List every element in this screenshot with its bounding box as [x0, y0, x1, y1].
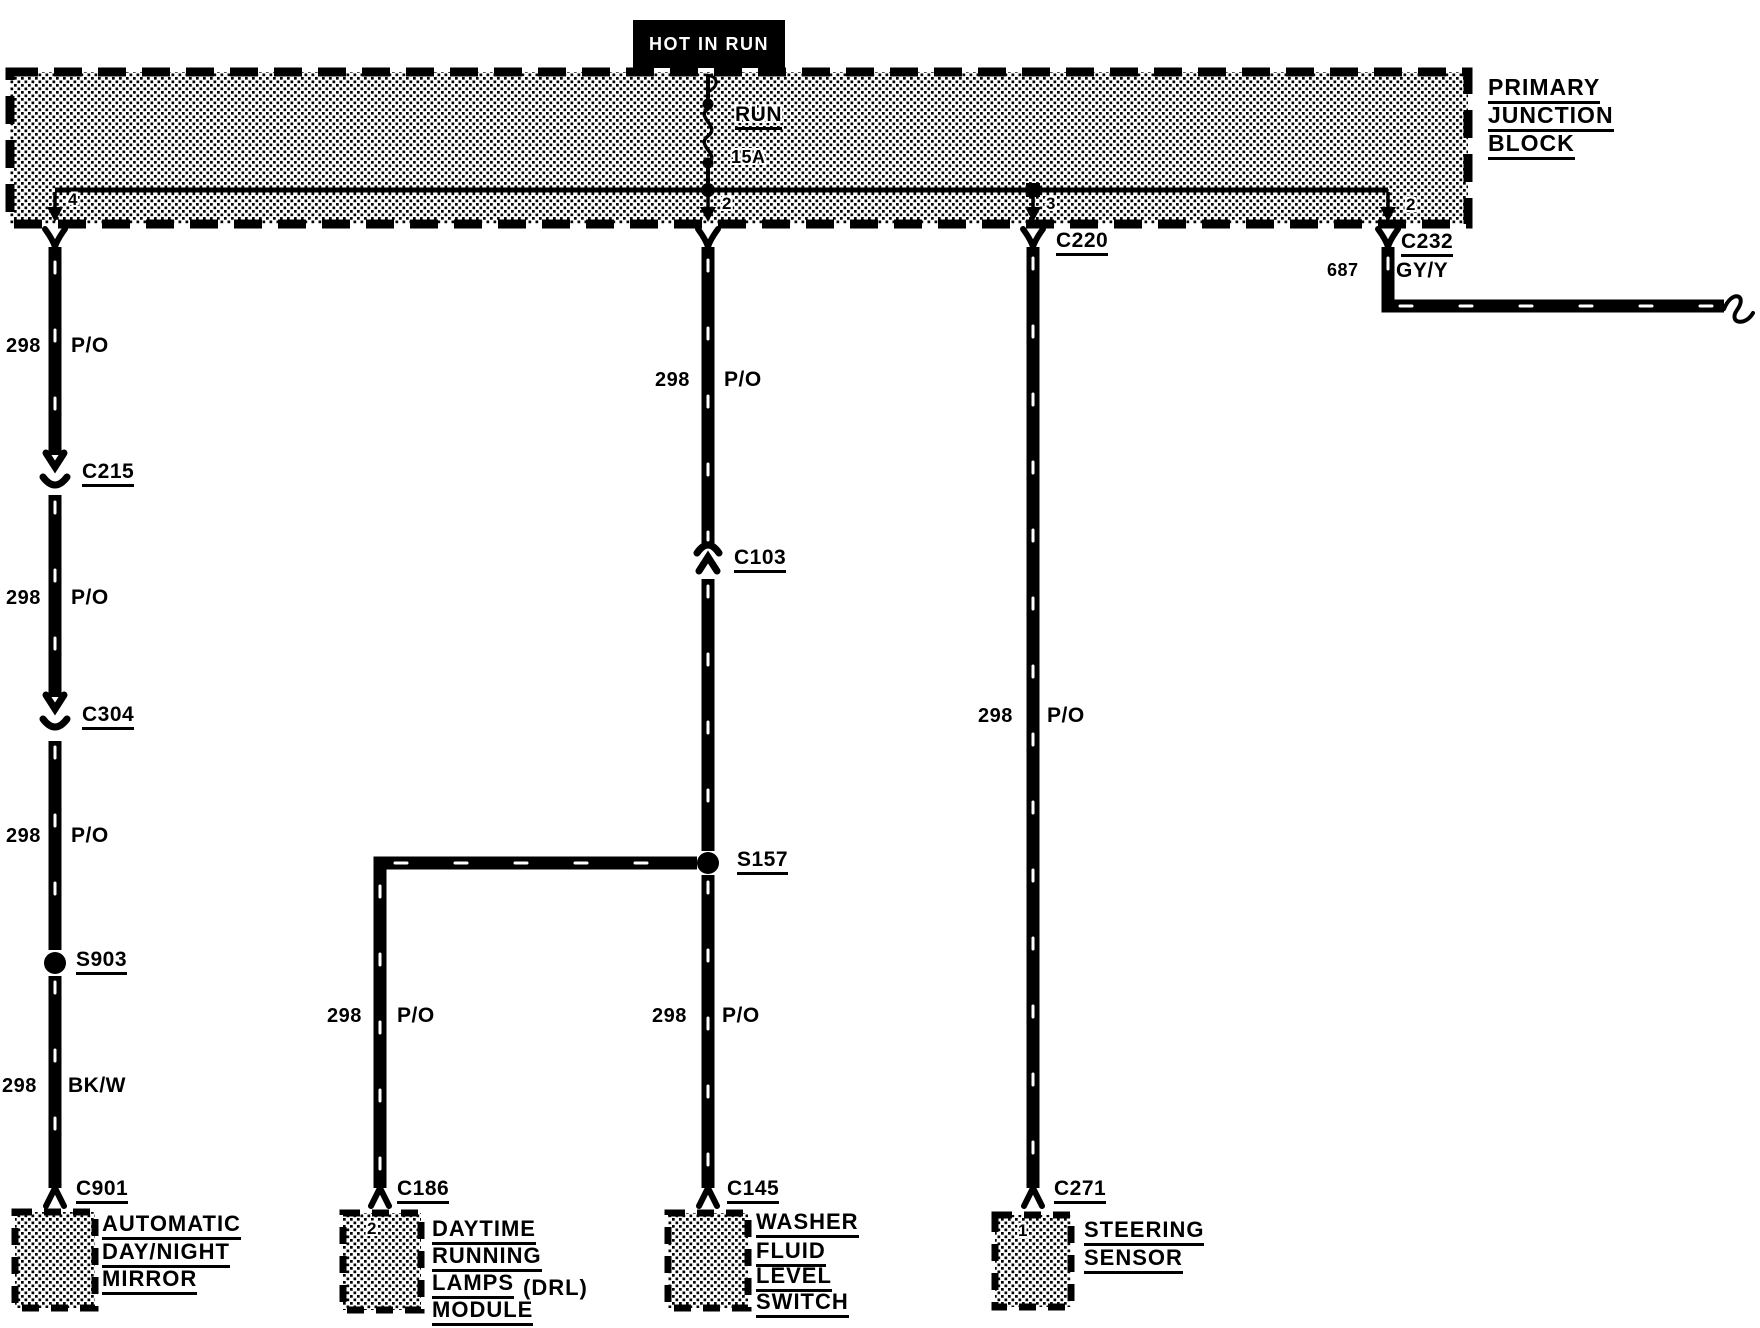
wire-color-label: P/O: [71, 825, 109, 846]
component-pin-number: 1: [1018, 1222, 1028, 1239]
wire-circuit-label: 298: [978, 706, 1013, 726]
wire-circuit-label: 298: [6, 588, 41, 608]
component-name-line: DAY/NIGHT: [102, 1241, 230, 1268]
diagram-canvas: [0, 0, 1760, 1328]
junction-block-title-line2: JUNCTION: [1488, 104, 1614, 132]
pin-number-2-center: 2: [722, 195, 732, 212]
component-name-word: (DRL): [523, 1277, 588, 1299]
wire-circuit-label: 298: [652, 1006, 687, 1026]
fuse-rating-label: 15A: [731, 148, 766, 166]
component-name-line: LAMPS (DRL): [432, 1272, 588, 1299]
wire-dash-marks: [55, 258, 1716, 1183]
pin-number-4: 4: [68, 191, 78, 208]
offpage-continuation-icon: [1724, 296, 1753, 322]
drl-module-box: [343, 1213, 421, 1310]
wire-color-label: BK/W: [68, 1075, 126, 1096]
component-name-line: AUTOMATIC: [102, 1213, 241, 1240]
wire-color-label: P/O: [71, 587, 109, 608]
bus-junction-tap: [1026, 183, 1040, 197]
mirror-component-box: [15, 1212, 95, 1308]
hot-in-run-banner: HOT IN RUN: [633, 20, 785, 68]
wire-circuit-label: 298: [6, 826, 41, 846]
connector-c215-symbol: [43, 453, 67, 485]
connector-label-c145: C145: [727, 1178, 779, 1204]
connector-label-c215: C215: [82, 461, 134, 487]
connector-c304-symbol: [43, 695, 67, 727]
connector-label-c304: C304: [82, 704, 134, 730]
steering-sensor-box: [995, 1215, 1071, 1307]
component-name-word: LAMPS: [432, 1272, 514, 1299]
splice-s157-dot: [697, 852, 719, 874]
bus-junction-dot: [701, 183, 715, 197]
component-name-line: LEVEL: [756, 1265, 832, 1292]
splice-label-s157: S157: [737, 849, 788, 875]
junction-block-title-line3: BLOCK: [1488, 132, 1575, 160]
washer-switch-box: [668, 1213, 748, 1308]
splice-label-s903: S903: [76, 949, 127, 975]
splice-s903-dot: [44, 952, 66, 974]
component-name-line: RUNNING: [432, 1245, 542, 1272]
component-name-line: STEERING: [1084, 1219, 1204, 1246]
wire-circuit-label: 298: [327, 1006, 362, 1026]
component-name-line: SENSOR: [1084, 1247, 1183, 1274]
wire-circuit-label: 298: [6, 336, 41, 356]
wires: [55, 247, 1724, 1188]
connector-c103-symbol: [697, 545, 719, 571]
wiring-diagram-page: HOT IN RUN PRIMARY JUNCTION BLOCK RUN 15…: [0, 0, 1760, 1328]
junction-block-title-line1: PRIMARY: [1488, 76, 1600, 104]
component-end-forks: [46, 1188, 1042, 1206]
connector-label-c901: C901: [76, 1178, 128, 1204]
component-name-line: SWITCH: [756, 1291, 849, 1318]
block-exit-forks: [45, 229, 1398, 247]
connector-label-c186: C186: [397, 1178, 449, 1204]
connector-label-c103: C103: [734, 547, 786, 573]
wire-color-label: P/O: [722, 1005, 760, 1026]
wire-circuit-label: 298: [655, 370, 690, 390]
component-name-line: WASHER: [756, 1211, 859, 1238]
connector-label-c220: C220: [1056, 230, 1108, 256]
wire-color-label: GY/Y: [1396, 260, 1448, 281]
wire-color-label: P/O: [397, 1005, 435, 1026]
wire-color-label: P/O: [71, 335, 109, 356]
component-name-line: MODULE: [432, 1299, 533, 1326]
component-pin-number: 2: [367, 1220, 377, 1237]
component-name-line: DAYTIME: [432, 1218, 536, 1245]
pin-number-3: 3: [1046, 195, 1056, 212]
wire-color-label: P/O: [1047, 705, 1085, 726]
component-name-line: MIRROR: [102, 1268, 197, 1295]
connector-label-c271: C271: [1054, 1178, 1106, 1204]
switch-position-label: RUN: [735, 104, 782, 130]
wire-circuit-label: 298: [2, 1076, 37, 1096]
wire-circuit-label: 687: [1327, 261, 1359, 279]
pin-number-2-right: 2: [1406, 196, 1416, 213]
connector-label-c232: C232: [1401, 231, 1453, 257]
wire-color-label: P/O: [724, 369, 762, 390]
